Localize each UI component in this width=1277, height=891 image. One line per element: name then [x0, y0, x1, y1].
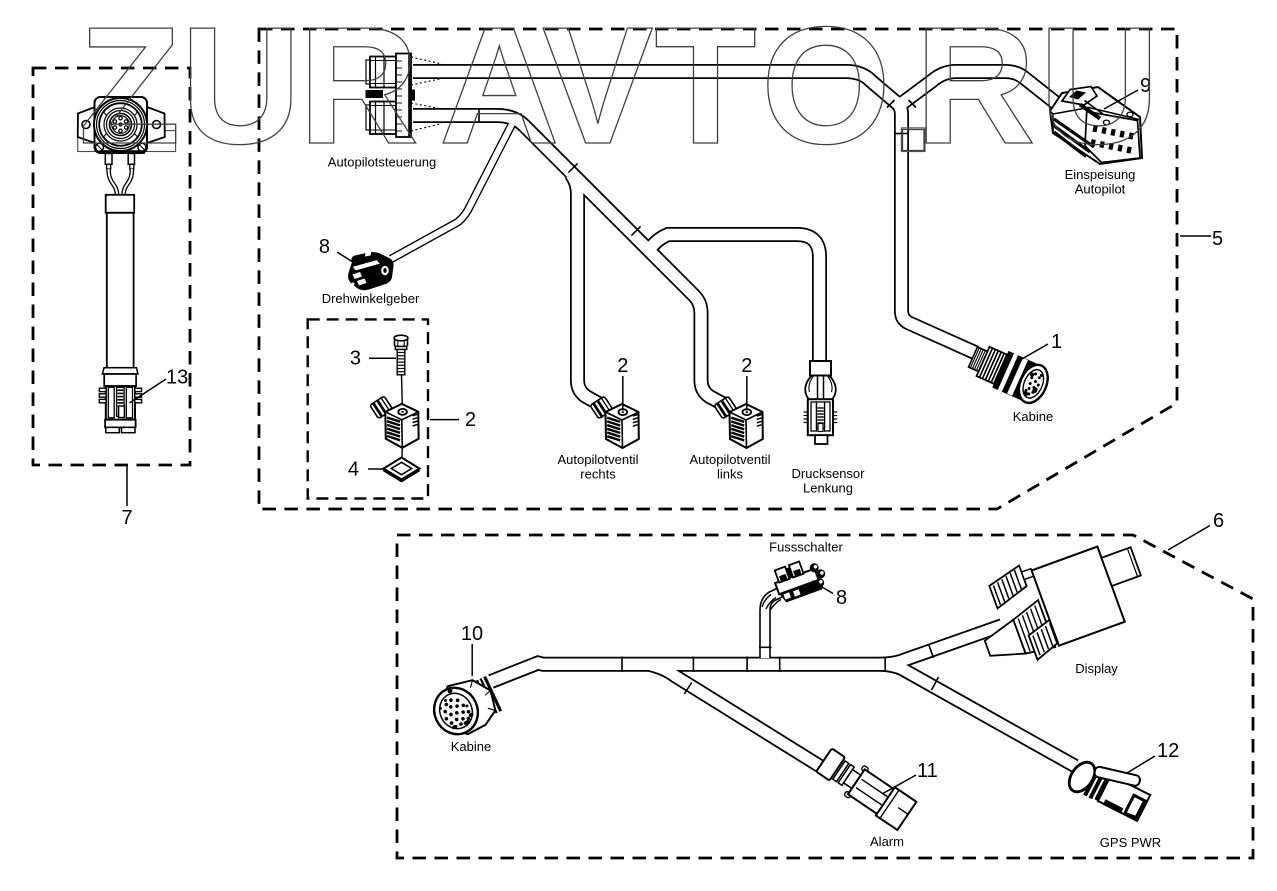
svg-text:5: 5	[1212, 228, 1223, 250]
svg-text:7: 7	[121, 507, 132, 529]
svg-text:Fussschalter: Fussschalter	[769, 540, 843, 555]
svg-text:10: 10	[461, 623, 483, 645]
svg-text:Autopilot: Autopilot	[1075, 182, 1126, 197]
svg-text:Kabine: Kabine	[451, 739, 491, 754]
svg-text:Display: Display	[1075, 661, 1118, 676]
svg-text:1: 1	[1051, 331, 1062, 353]
svg-text:Lenkung: Lenkung	[803, 481, 853, 496]
svg-text:Autopilotventil: Autopilotventil	[558, 452, 639, 467]
svg-text:4: 4	[348, 459, 359, 481]
svg-text:Kabine: Kabine	[1013, 409, 1053, 424]
svg-text:Autopilotventil: Autopilotventil	[690, 452, 771, 467]
svg-text:links: links	[717, 467, 744, 482]
svg-text:11: 11	[917, 760, 938, 782]
svg-text:rechts: rechts	[580, 467, 616, 482]
svg-text:Drucksensor: Drucksensor	[792, 466, 866, 481]
svg-text:8: 8	[319, 236, 330, 258]
svg-text:GPS PWR: GPS PWR	[1100, 835, 1161, 850]
svg-text:6: 6	[1213, 510, 1224, 532]
svg-text:8: 8	[836, 587, 847, 609]
svg-text:ZURAVTO: ZURAVTO	[79, 0, 891, 179]
svg-text:12: 12	[1157, 740, 1179, 762]
svg-text:13: 13	[166, 367, 188, 389]
svg-text:3: 3	[350, 348, 361, 370]
svg-text:Alarm: Alarm	[870, 834, 904, 849]
svg-text:Drehwinkelgeber: Drehwinkelgeber	[322, 291, 420, 306]
svg-text:2: 2	[465, 409, 476, 431]
svg-text:2: 2	[617, 355, 628, 377]
svg-text:2: 2	[741, 355, 752, 377]
